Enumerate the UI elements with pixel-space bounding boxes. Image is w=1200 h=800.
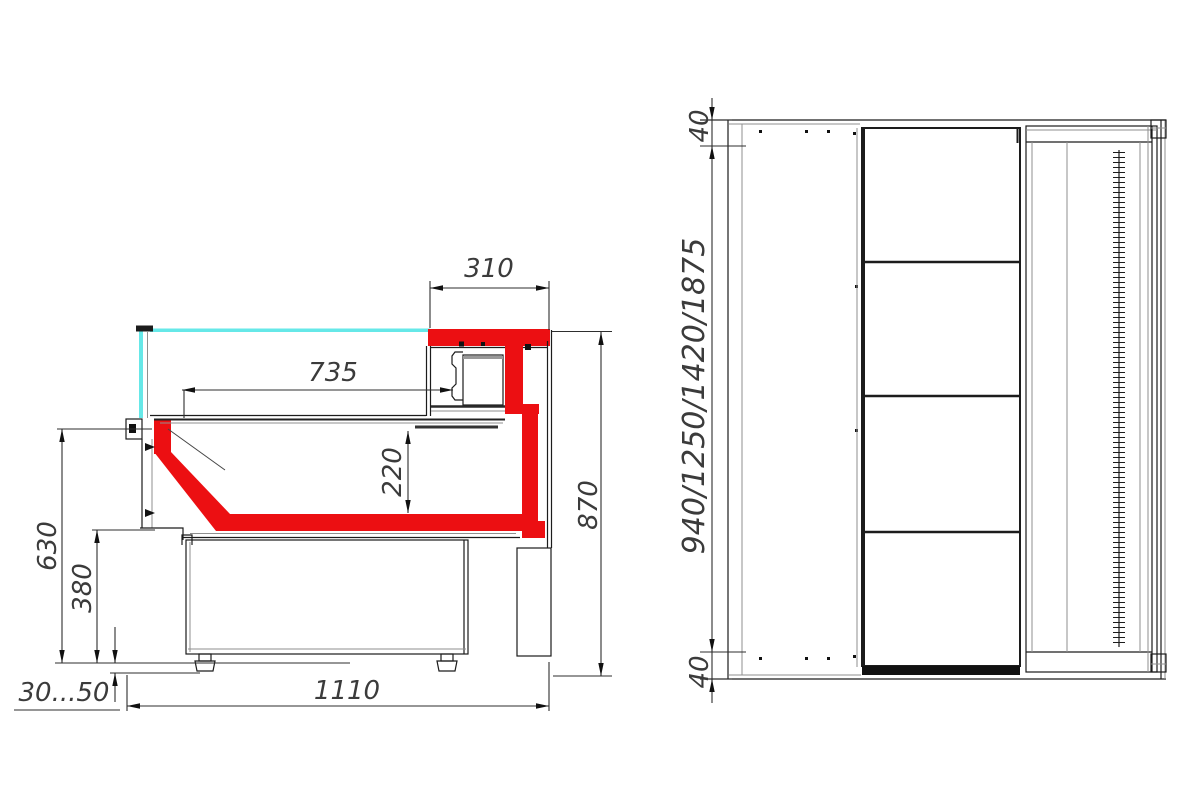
dim-220: 220 — [378, 431, 411, 513]
dim-feet-30-50: 30...50 — [14, 627, 120, 710]
right-panel — [1026, 120, 1166, 672]
dim-label-870: 870 — [574, 480, 604, 530]
glass-top-line — [150, 329, 430, 333]
outer-frame — [700, 120, 1166, 679]
dim-1110: 1110 — [127, 662, 549, 711]
dim-label-lengths: 940/1250/1420/1875 — [677, 238, 712, 555]
section-mark — [145, 509, 155, 517]
dim-label-feet: 30...50 — [19, 678, 110, 708]
red-front-bar — [154, 420, 171, 454]
red-bottom-band — [216, 514, 528, 531]
evaporator-box — [463, 355, 503, 405]
glass-top-cap — [136, 326, 153, 332]
dim-870: 870 — [552, 332, 612, 677]
red-bottom-step — [522, 521, 545, 538]
side-section-view: 310 735 220 870 630 — [14, 254, 612, 711]
red-diagonal — [154, 452, 230, 531]
dim-label-220: 220 — [378, 447, 408, 497]
section-mark — [145, 443, 155, 451]
dim-label-630: 630 — [33, 521, 63, 571]
corner-tab-top — [1151, 120, 1166, 138]
screw-dot — [481, 342, 485, 346]
dim-380: 380 — [68, 530, 155, 663]
glass-front — [136, 326, 430, 419]
dim-label-380: 380 — [68, 563, 98, 613]
dim-630: 630 — [33, 429, 152, 663]
middle-panel — [857, 128, 1020, 675]
drawing-svg: 310 735 220 870 630 — [0, 0, 1200, 800]
adjustable-foot-rear — [437, 654, 457, 671]
dim-length-stack: 40 940/1250/1420/1875 40 — [677, 98, 746, 703]
mount-bracket — [452, 352, 463, 400]
deck-lines — [150, 416, 505, 471]
dim-label-735: 735 — [308, 358, 358, 388]
dim-735: 735 — [182, 358, 453, 418]
corner-tab-bottom — [1151, 654, 1166, 672]
dim-label-40-bottom: 40 — [685, 655, 715, 688]
base-box — [182, 535, 468, 671]
dim-310: 310 — [430, 254, 549, 330]
glass-vertical — [139, 331, 143, 418]
dim-label-1110: 1110 — [314, 676, 380, 706]
technical-drawing-page: 310 735 220 870 630 — [0, 0, 1200, 800]
dim-label-310: 310 — [464, 254, 514, 284]
dim-label-40-top: 40 — [685, 109, 715, 142]
screw-dots — [759, 130, 858, 660]
panel-bottom-bar — [862, 666, 1020, 675]
red-top-bar — [428, 329, 550, 346]
screw-dot — [525, 344, 531, 350]
screw-dot — [459, 342, 464, 347]
red-stem — [505, 345, 523, 409]
red-back-wall — [522, 404, 538, 531]
top-plan-view: 40 940/1250/1420/1875 40 — [677, 98, 1166, 703]
